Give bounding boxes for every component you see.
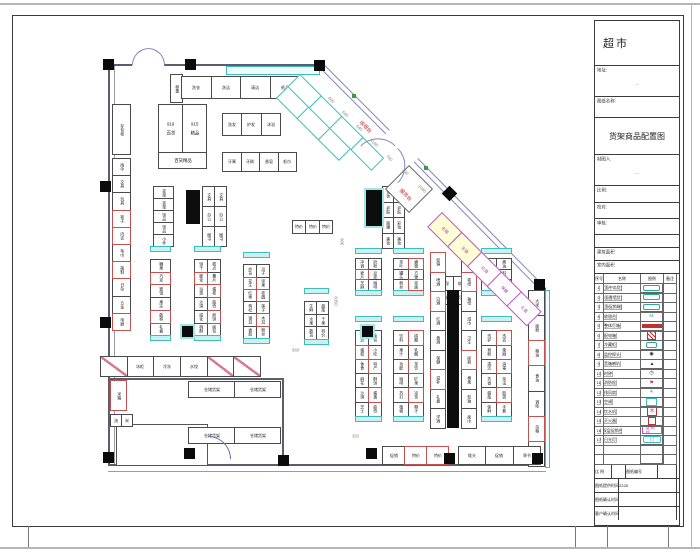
legend-row: 10时钟◷ xyxy=(595,370,679,380)
shelf-cell: 洗护 xyxy=(481,330,497,345)
gondola-d4: 洗护洗衣皂粉柔顺清洁消毒芳香杀虫蜡烛胶袋保鲜手套 xyxy=(481,316,511,430)
shelf-cell: 蛋黄 xyxy=(368,387,382,402)
legend-row: 17日光灯灯 xyxy=(595,436,679,446)
shelf-cell: 特产 xyxy=(368,359,382,374)
right-wall-liner xyxy=(545,290,550,468)
shelf-cell: 沐浴 xyxy=(261,113,281,136)
gondola-s1: 生鲜蔬菜水果干果散货特价 xyxy=(304,288,328,352)
fan-legend-symbol: ✳ xyxy=(641,389,663,398)
shelf-end-cap xyxy=(355,248,382,254)
shelf-cell: 功能 xyxy=(393,359,409,374)
bar-right-cells: 纸品卷纸抽纸湿巾卫生尿裤棉柔软抽面巾 xyxy=(461,252,476,428)
area-row-1: 建筑面积 xyxy=(595,248,679,261)
shelf-cell: 木耳 xyxy=(256,313,270,326)
shelf-cell: 植物 xyxy=(393,402,409,417)
gondola-l2: 饼干糕点膨化薯片派类蛋卷沙琪曲奇威化煎饼桃酥面包 xyxy=(194,246,220,348)
legend-row: 2单面靠墙货架 xyxy=(595,294,679,304)
red-bar-legend-symbol xyxy=(641,322,663,331)
shelf-cell: 卫生 xyxy=(461,330,477,351)
shelf-cell: 曲奇 xyxy=(207,297,221,311)
left-tiny-cells: 油米 xyxy=(110,414,132,426)
column xyxy=(314,60,325,71)
shelf-cell: 杂粮 xyxy=(528,416,545,442)
shelf-cell xyxy=(233,356,261,377)
department-block-919: 919百货 915精品 百货精品 xyxy=(158,104,206,168)
shelf-cell: 沙琪 xyxy=(194,297,208,311)
shelf-cell: 办公 xyxy=(214,206,227,227)
footer-time-row-1: 图纸提供时间 2228 xyxy=(595,479,679,493)
teal-pill-legend-symbol xyxy=(641,294,663,303)
shelf-end-cap xyxy=(304,288,329,294)
shelf-cell: 促销 xyxy=(485,446,513,465)
shelf-cell: 滋补 xyxy=(430,369,446,390)
shelf-cell: 水饺 xyxy=(180,356,208,377)
none-legend-symbol xyxy=(641,446,663,455)
shelf-cell: 散称 xyxy=(150,310,171,324)
shelf-cell: 调味 xyxy=(528,391,545,417)
legend-row: 16双层促销台促销台 xyxy=(595,427,679,437)
shelf-cell: 清洁 xyxy=(481,359,497,374)
shelf-end-cap xyxy=(194,246,221,252)
dim-label: 3050 xyxy=(334,296,338,306)
sheet-bottom-rule xyxy=(0,547,700,549)
legend-row: 14饮水机水 xyxy=(595,408,679,418)
shelf-end-cap xyxy=(393,316,424,322)
freezer-row: 冰柜冷冻水饺 xyxy=(100,356,260,376)
column xyxy=(278,455,289,466)
shelf-cell xyxy=(100,356,128,377)
bar-left-cells: 促销啤酒白酒红酒黄酒保健滋补礼盒洋酒 xyxy=(430,252,445,428)
shelf-end-cap xyxy=(355,316,382,322)
shelf-end-cap xyxy=(355,416,382,422)
footer-band-tick-4 xyxy=(668,526,669,547)
dim-label: 900 xyxy=(340,238,344,245)
shelf-cell: 湿巾 xyxy=(461,311,477,332)
shelf-cell xyxy=(207,356,235,377)
top-shelf-row-2: 洗发护发沐浴 xyxy=(222,113,280,135)
footer-time-row-3: 客户确认时间 xyxy=(595,507,679,520)
column xyxy=(100,317,111,328)
shelf-end-cap xyxy=(194,335,221,341)
top-shelf-row-3: 牙膏牙刷香皂毛巾 xyxy=(222,152,296,171)
shelf-cell: 煎饼 xyxy=(207,310,221,324)
shelf-cell: 彩妆 xyxy=(393,217,405,234)
shelf-cell: 礼盒 xyxy=(430,389,446,410)
shelf-cell: 枸杞 xyxy=(243,301,257,314)
shelf-end-cap xyxy=(304,339,329,345)
shelf-cell: 礼盒 xyxy=(150,323,171,337)
shelf-cell: 特价 xyxy=(316,326,329,340)
shelf-cell: 桂圆 xyxy=(256,289,270,302)
shelf-cell: 袜子 xyxy=(112,210,131,228)
shelf-cell: 软抽 xyxy=(461,389,477,410)
shelf-cell: 牙刷 xyxy=(241,152,261,172)
legend-row: 12排风扇✳ xyxy=(595,389,679,399)
column xyxy=(534,279,545,290)
legend-row xyxy=(595,455,679,465)
shelf-cell: 银耳 xyxy=(243,313,257,326)
shelf-end-cap xyxy=(150,246,171,252)
column xyxy=(185,59,196,70)
shelf-cell: 面包 xyxy=(207,323,221,337)
shelf-cell: 干果 xyxy=(316,314,329,328)
bottom-row-1: 促销特价特价 xyxy=(382,446,448,464)
shelf-end-cap xyxy=(243,338,270,344)
shelf-cell: 巧克 xyxy=(150,272,171,286)
shelf-cell: 皂粉 xyxy=(481,345,497,360)
legend-row: 11消防栓⚑ xyxy=(595,379,679,389)
shelf-end-cap xyxy=(481,416,512,422)
shelf-cell: 麦片 xyxy=(355,269,369,280)
shelf-cell: 文具 xyxy=(112,175,131,193)
column xyxy=(532,453,543,464)
none-legend-symbol xyxy=(641,455,663,464)
shelf-cell: 毛巾 xyxy=(278,152,298,172)
dim-label: 362 xyxy=(352,434,359,438)
gondola-u2: 茶叶蜂蜜罐头方便粉丝挂面 xyxy=(393,248,423,300)
center-black-bar xyxy=(447,290,459,428)
legend-row: 13空调 xyxy=(595,398,679,408)
shelf-cell: 白酒 xyxy=(430,291,446,312)
mag-box-legend-symbol: 促销台 xyxy=(641,427,663,436)
sheet-name-label-row: 图纸名称: xyxy=(595,97,679,118)
clock-legend-symbol: ◷ xyxy=(641,370,663,379)
shelf-cell: 仓储货架 xyxy=(188,381,235,398)
shelf-cell: 薯片 xyxy=(207,272,221,286)
shelf-cell: 保鲜 xyxy=(481,402,497,417)
shelf-cell: 香菇 xyxy=(243,326,257,339)
area-row-2: 室内面积 xyxy=(595,261,679,274)
shelf-cell: 内衣 xyxy=(112,227,131,245)
dim-label: 960 xyxy=(292,348,299,352)
flag-legend-symbol: ⚑ xyxy=(641,379,663,388)
shelf-cell: 沙琪 xyxy=(355,387,369,402)
shelf-cell: 五金 xyxy=(112,296,131,314)
shelf-cell: 手套 xyxy=(496,402,512,417)
column-wrapped xyxy=(360,324,375,339)
grid-2: 文具文具办公办公图书图书 xyxy=(202,186,226,246)
shelf-cell: 清洁 xyxy=(240,76,271,99)
scale-row: 比例: xyxy=(595,186,679,203)
footer-band-tick-3 xyxy=(607,526,608,547)
shelf-cell: 休食 xyxy=(355,359,369,374)
shelf-cell: 啤酒 xyxy=(430,272,446,293)
top-wall-shelf-strip xyxy=(226,66,320,75)
column xyxy=(444,453,455,464)
store-name: 超市 xyxy=(595,21,679,66)
bottom-row-2: 堆头促销季节 xyxy=(458,446,540,464)
shelf-cell: 保健 xyxy=(430,350,446,371)
shelf-cell: 洋酒 xyxy=(430,408,446,429)
cyan-pill-legend-symbol: 灯 xyxy=(641,436,663,445)
address-row: 地址: ·· xyxy=(595,66,679,97)
teal-pill-legend-symbol xyxy=(641,284,663,293)
shelf-cell: 芝士 xyxy=(355,402,369,417)
shelf-cell: 粉丝 xyxy=(256,326,270,339)
shelf-cell: 消毒 xyxy=(496,359,512,374)
wall-storage-right xyxy=(282,378,284,466)
shelf-end-cap xyxy=(481,316,512,322)
legend-row: 15灭火器 xyxy=(595,417,679,427)
column xyxy=(184,448,195,459)
shelf-cell: 乳酸 xyxy=(408,345,424,360)
black-fixture-a xyxy=(186,190,200,224)
shelf-cell: 冰柜 xyxy=(127,356,155,377)
shelf-cell: 苏打 xyxy=(393,387,409,402)
legend-row: 4收银台M xyxy=(595,313,679,323)
title-block: 超市 地址: ·· 图纸名称: 货架商品配置图 制图人: ··· 比例: 校对:… xyxy=(594,20,680,526)
drafter-row: 制图人: ··· xyxy=(595,155,679,186)
sheet-top-rule xyxy=(0,3,700,5)
shelf-cell: 特价 xyxy=(305,220,319,234)
gondola-l1: 糖果巧克蜜饯果冻散称礼盒 xyxy=(150,246,170,348)
shelf-cell: 麻花 xyxy=(355,373,369,388)
shelf-cell: 椰汁 xyxy=(408,402,424,417)
shelf-cell: 蜂蜜 xyxy=(408,258,424,269)
shelf-cell: 文具 xyxy=(214,186,227,207)
shelf-cell: 洗衣 xyxy=(496,330,512,345)
shelf-cell: 饮料 xyxy=(393,330,409,345)
shelf-cell: 挂面 xyxy=(408,279,424,290)
teal-sm-legend-symbol xyxy=(641,341,663,350)
legend-row: 1双面中岛货架 xyxy=(595,284,679,294)
legend-row: 5整体灯箱 xyxy=(595,322,679,332)
shelf-end-cap xyxy=(150,335,171,341)
shelf-cell: 茶饮 xyxy=(408,359,424,374)
column xyxy=(100,181,111,192)
shelf-cell: 蜡烛 xyxy=(481,387,497,402)
shelf-cell: 尿裤 xyxy=(461,350,477,371)
column-wrapped xyxy=(180,324,195,339)
shelf-end-cap xyxy=(393,248,424,254)
shelf-cell: 胶袋 xyxy=(496,387,512,402)
shelf-cell: 糖果 xyxy=(150,259,171,273)
shelf-cell: 毛巾 xyxy=(112,244,131,262)
shelf-cell: 咖啡 xyxy=(393,373,409,388)
legend-table: 1双面中岛货架2单面靠墙货架3双面促销端架4收银台M5整体灯箱6配电箱7冷藏柜8… xyxy=(595,284,679,465)
grid-1: 挂架挂架饰品饰品小件 xyxy=(153,186,173,246)
tri-legend-symbol: ▲ xyxy=(641,360,663,369)
shelf-end-cap xyxy=(243,252,270,258)
shelf-cell: 花生 xyxy=(243,277,257,290)
shelf-cell: 香皂 xyxy=(259,152,279,172)
shelf-cell: 果汁 xyxy=(393,345,409,360)
legend-row: 3双面促销端架 xyxy=(595,303,679,313)
shelf-cell: 曲奇 xyxy=(368,402,382,417)
left-wall-shelf-run: 雨伞文具玩具袜子内衣毛巾拖鞋日杂五金电器 xyxy=(112,158,130,330)
shelf-cell: 食油 xyxy=(528,365,545,391)
footer-band-tick-1 xyxy=(28,526,29,547)
wall-storage-top xyxy=(108,378,284,380)
shelf-cell: 芳香 xyxy=(481,373,497,388)
shelf-cell: 玩具 xyxy=(112,192,131,210)
shelf-cell: 派类 xyxy=(194,284,208,298)
legend-row xyxy=(595,446,679,456)
storage-shelves-1: 仓储货架仓储货架 xyxy=(188,381,280,397)
shelf-cell: 仓储货架 xyxy=(234,381,281,398)
red-sm-legend-symbol xyxy=(641,417,663,426)
shelf-cell: 矿泉 xyxy=(408,373,424,388)
audit-row: 审核: xyxy=(595,219,679,235)
shelf-cell: 洗发 xyxy=(222,113,242,136)
bag-locker: 存包柜 xyxy=(112,104,130,154)
shelf-cell: 雨伞 xyxy=(112,158,131,176)
gondola-l3: 炒货瓜子花生坚果红枣桂圆枸杞莲子银耳木耳香菇粉丝 xyxy=(243,252,269,350)
shelf-cell: 棉柔 xyxy=(461,369,477,390)
shelf-cell: 果冻 xyxy=(150,297,171,311)
shelf-cell: 小吃 xyxy=(368,345,382,360)
shelf-cell: 威化 xyxy=(194,310,208,324)
cam-legend-symbol: ◉ xyxy=(641,351,663,360)
shelf-cell: 糕点 xyxy=(207,259,221,273)
shelf-cell: 坚果 xyxy=(256,277,270,290)
shelf-cell: 凉茶 xyxy=(408,387,424,402)
shelf-cell: 冷冻 xyxy=(153,356,181,377)
legend-row: 9音箱喇叭▲ xyxy=(595,360,679,370)
footer-scale-row: 比 例 图纸编号 xyxy=(595,465,679,479)
shelf-end-cap xyxy=(355,290,382,296)
shelf-cell: 酥饼 xyxy=(368,373,382,388)
column xyxy=(103,59,114,70)
shelf-cell: 护发 xyxy=(241,113,261,136)
shelf-cell: 蔬菜 xyxy=(316,301,329,315)
shelf-cell: 面巾 xyxy=(461,408,477,429)
gondola-u1: 冲调奶粉麦片豆浆芝麻咖啡 xyxy=(355,248,381,300)
shelf-cell: 黄酒 xyxy=(430,330,446,351)
shelf-cell: 洗洁 xyxy=(211,76,242,99)
shelf-cell: 柔顺 xyxy=(496,345,512,360)
footer-band-tick-2 xyxy=(575,526,576,547)
shelf-cell: 米箱 xyxy=(110,380,127,411)
shelf-cell: 粮油 xyxy=(528,340,545,366)
legend-header: 序号 名称 图例 备注 xyxy=(595,274,679,284)
legend-row: 8监控探头◉ xyxy=(595,351,679,361)
shelf-cell: 桃酥 xyxy=(194,323,208,337)
teal-text-legend-symbol: M xyxy=(641,313,663,322)
shelf-cell: 促销 xyxy=(382,446,405,465)
shelf-cell: 拖鞋 xyxy=(112,261,131,279)
shelf-cell: 碳酸 xyxy=(408,330,424,345)
shelf-cell: 红酒 xyxy=(430,311,446,332)
door-tick-2 xyxy=(424,166,428,170)
shelf-cell: 蛋糕 xyxy=(355,345,369,360)
shelf-cell: 蛋卷 xyxy=(207,284,221,298)
teal-pill-legend-symbol xyxy=(641,303,663,312)
cad-floor-plan-sheet: 存包柜 称重 雨伞文具玩具袜子内衣毛巾拖鞋日杂五金电器 洗衣洗洁清洁纸品 洗发护… xyxy=(0,0,700,555)
left-small-cell: 米箱 xyxy=(110,380,126,410)
legend-row: 7冷藏柜 xyxy=(595,341,679,351)
sheet-right-rule xyxy=(691,3,692,549)
cyan-box-legend-symbol xyxy=(641,398,663,407)
sheet-title: 货架商品配置图 xyxy=(595,118,679,155)
shelf-cell: 特价 xyxy=(319,220,333,234)
promo-row-t1: 特价特价特价 xyxy=(292,220,332,233)
door-tick-1 xyxy=(352,94,356,98)
shelf-cell: 蜜饯 xyxy=(150,284,171,298)
footer-time-row-2: 图纸确认时间 xyxy=(595,493,679,507)
shelf-cell: 炒货 xyxy=(243,264,257,277)
red-water-legend-symbol: 水 xyxy=(641,408,663,417)
storage-shelves-2: 仓储货架仓储货架 xyxy=(188,427,280,443)
shelf-cell: 洗衣 xyxy=(181,76,212,99)
column xyxy=(366,448,377,459)
shelf-cell: 图书 xyxy=(214,226,227,247)
blank-row xyxy=(595,235,679,248)
shelf-end-cap xyxy=(393,416,424,422)
shelf-end-cap xyxy=(481,248,512,254)
gondola-d2: 饮料碳酸果汁乳酸功能茶饮咖啡矿泉苏打凉茶植物椰汁 xyxy=(393,316,423,430)
shelf-cell: 红枣 xyxy=(243,289,257,302)
legend-row: 6配电箱 xyxy=(595,332,679,342)
shelf-cell: 美妆 xyxy=(393,233,405,250)
shelf-cell: 饼干 xyxy=(194,259,208,273)
shelf-cell: 杀虫 xyxy=(496,373,512,388)
wall-bottom-inner-line xyxy=(108,471,546,472)
shelf-cell: 抽纸 xyxy=(461,291,477,312)
shelf-cell: 牙膏 xyxy=(222,152,242,172)
shelf-cell: 日杂 xyxy=(112,278,131,296)
red-box-legend-symbol xyxy=(641,332,663,341)
shelf-cell: 仓储货架 xyxy=(234,427,281,444)
shelf-cell: 堆头 xyxy=(458,446,486,465)
shelf-cell: 膨化 xyxy=(194,272,208,286)
shelf-cell: 特价 xyxy=(292,220,306,234)
column xyxy=(103,452,114,463)
shelf-cell: 电器 xyxy=(112,313,131,331)
shelf-cell: 促销 xyxy=(430,252,446,273)
shelf-cell: 瓜子 xyxy=(256,264,270,277)
black-fixture-b xyxy=(364,188,384,228)
check-row: 校对: xyxy=(595,203,679,219)
shelf-cell: 莲子 xyxy=(256,301,270,314)
shelf-cell: 特价 xyxy=(404,446,427,465)
shelf-cell: 米 xyxy=(121,414,133,427)
